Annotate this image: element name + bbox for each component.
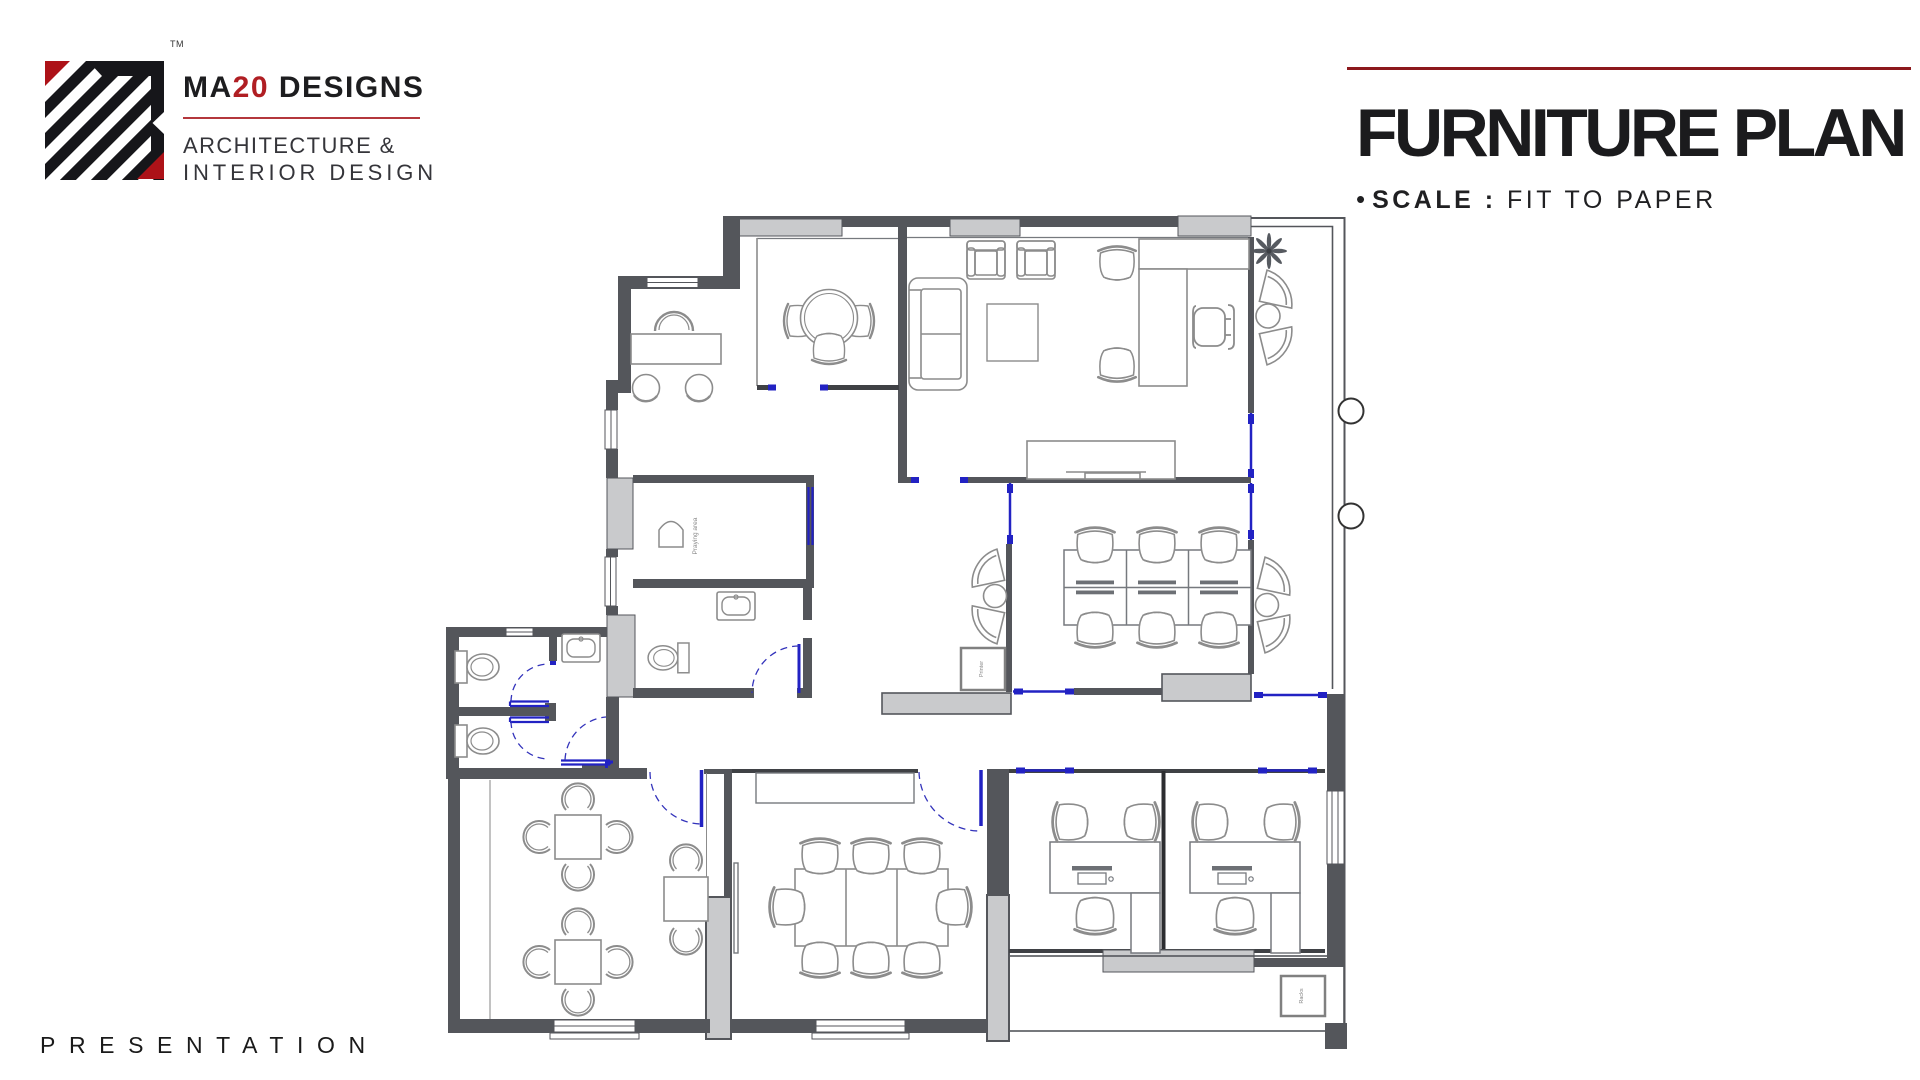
svg-text:Praying area: Praying area bbox=[692, 517, 699, 554]
svg-text:Printer: Printer bbox=[979, 661, 985, 677]
svg-text:Racks: Racks bbox=[1299, 988, 1305, 1004]
